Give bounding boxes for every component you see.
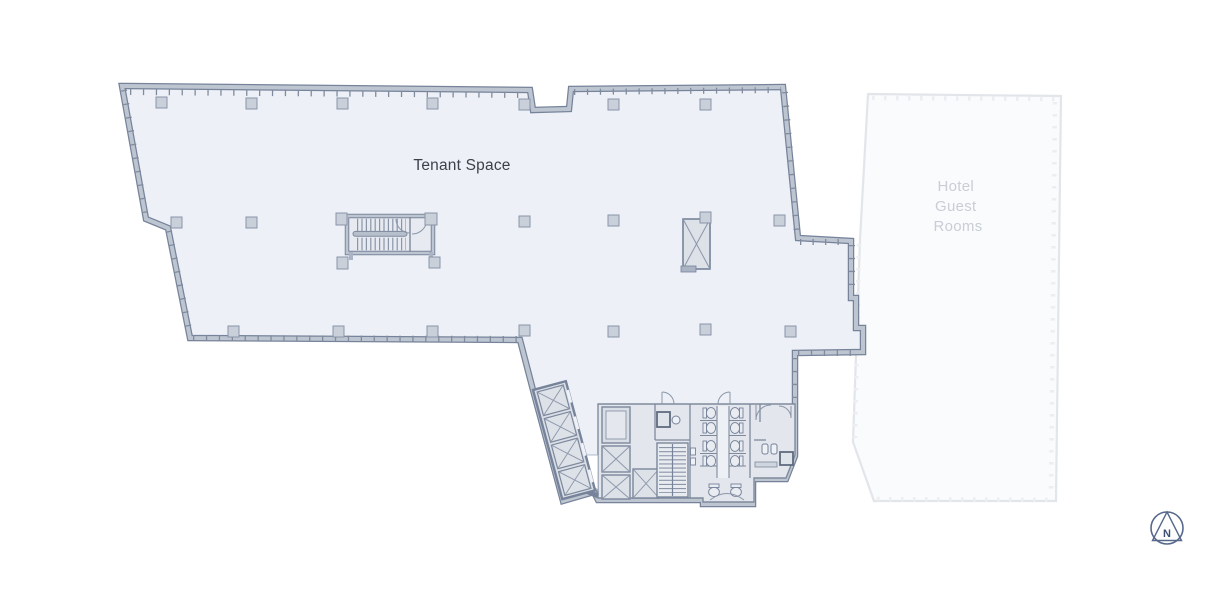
column [171,217,182,228]
stair-handrail [353,231,407,236]
column [519,99,530,110]
hotel-guest-rooms-label: Hotel Guest Rooms [933,178,982,235]
column [228,326,239,337]
column [336,213,347,225]
restroom-corridor [717,406,729,478]
floor-plan-page: Hotel Guest Rooms [0,0,1230,600]
column [608,215,619,226]
mop-sink [657,412,670,427]
elevator-cell [602,446,630,472]
column [425,213,437,225]
column [337,257,348,269]
core-stairwell [657,443,688,497]
urinal [771,444,777,454]
column [785,326,796,337]
shaft-stub-wall [681,266,696,272]
stair-leg [349,252,353,260]
column [608,99,619,110]
column [337,98,348,109]
column [774,215,785,226]
column [156,97,167,108]
column [429,257,440,268]
mechanical-shaft [681,212,711,272]
column [427,98,438,109]
sink [672,416,680,424]
column [333,326,344,337]
column [246,98,257,109]
elevator-cell [633,469,659,498]
sink [691,448,696,455]
hotel-guest-rooms-area: Hotel Guest Rooms [853,94,1061,501]
column [246,217,257,228]
column [519,216,530,227]
floor-plan: Hotel Guest Rooms [0,0,1230,600]
service-elevator-cab [606,411,626,439]
elevator-cell [602,475,630,499]
mop-sink [780,452,793,465]
hotel-outline [853,94,1061,501]
counter [755,462,777,467]
column [700,324,711,335]
service-core [598,392,795,502]
column [700,99,711,110]
north-arrow-icon: N [1151,512,1183,544]
compass-letter: N [1163,528,1171,540]
column [427,326,438,337]
sink [691,458,696,465]
column [608,326,619,337]
urinal [762,444,768,454]
tenant-space-label: Tenant Space [413,157,510,174]
column [519,325,530,336]
column [700,212,711,223]
